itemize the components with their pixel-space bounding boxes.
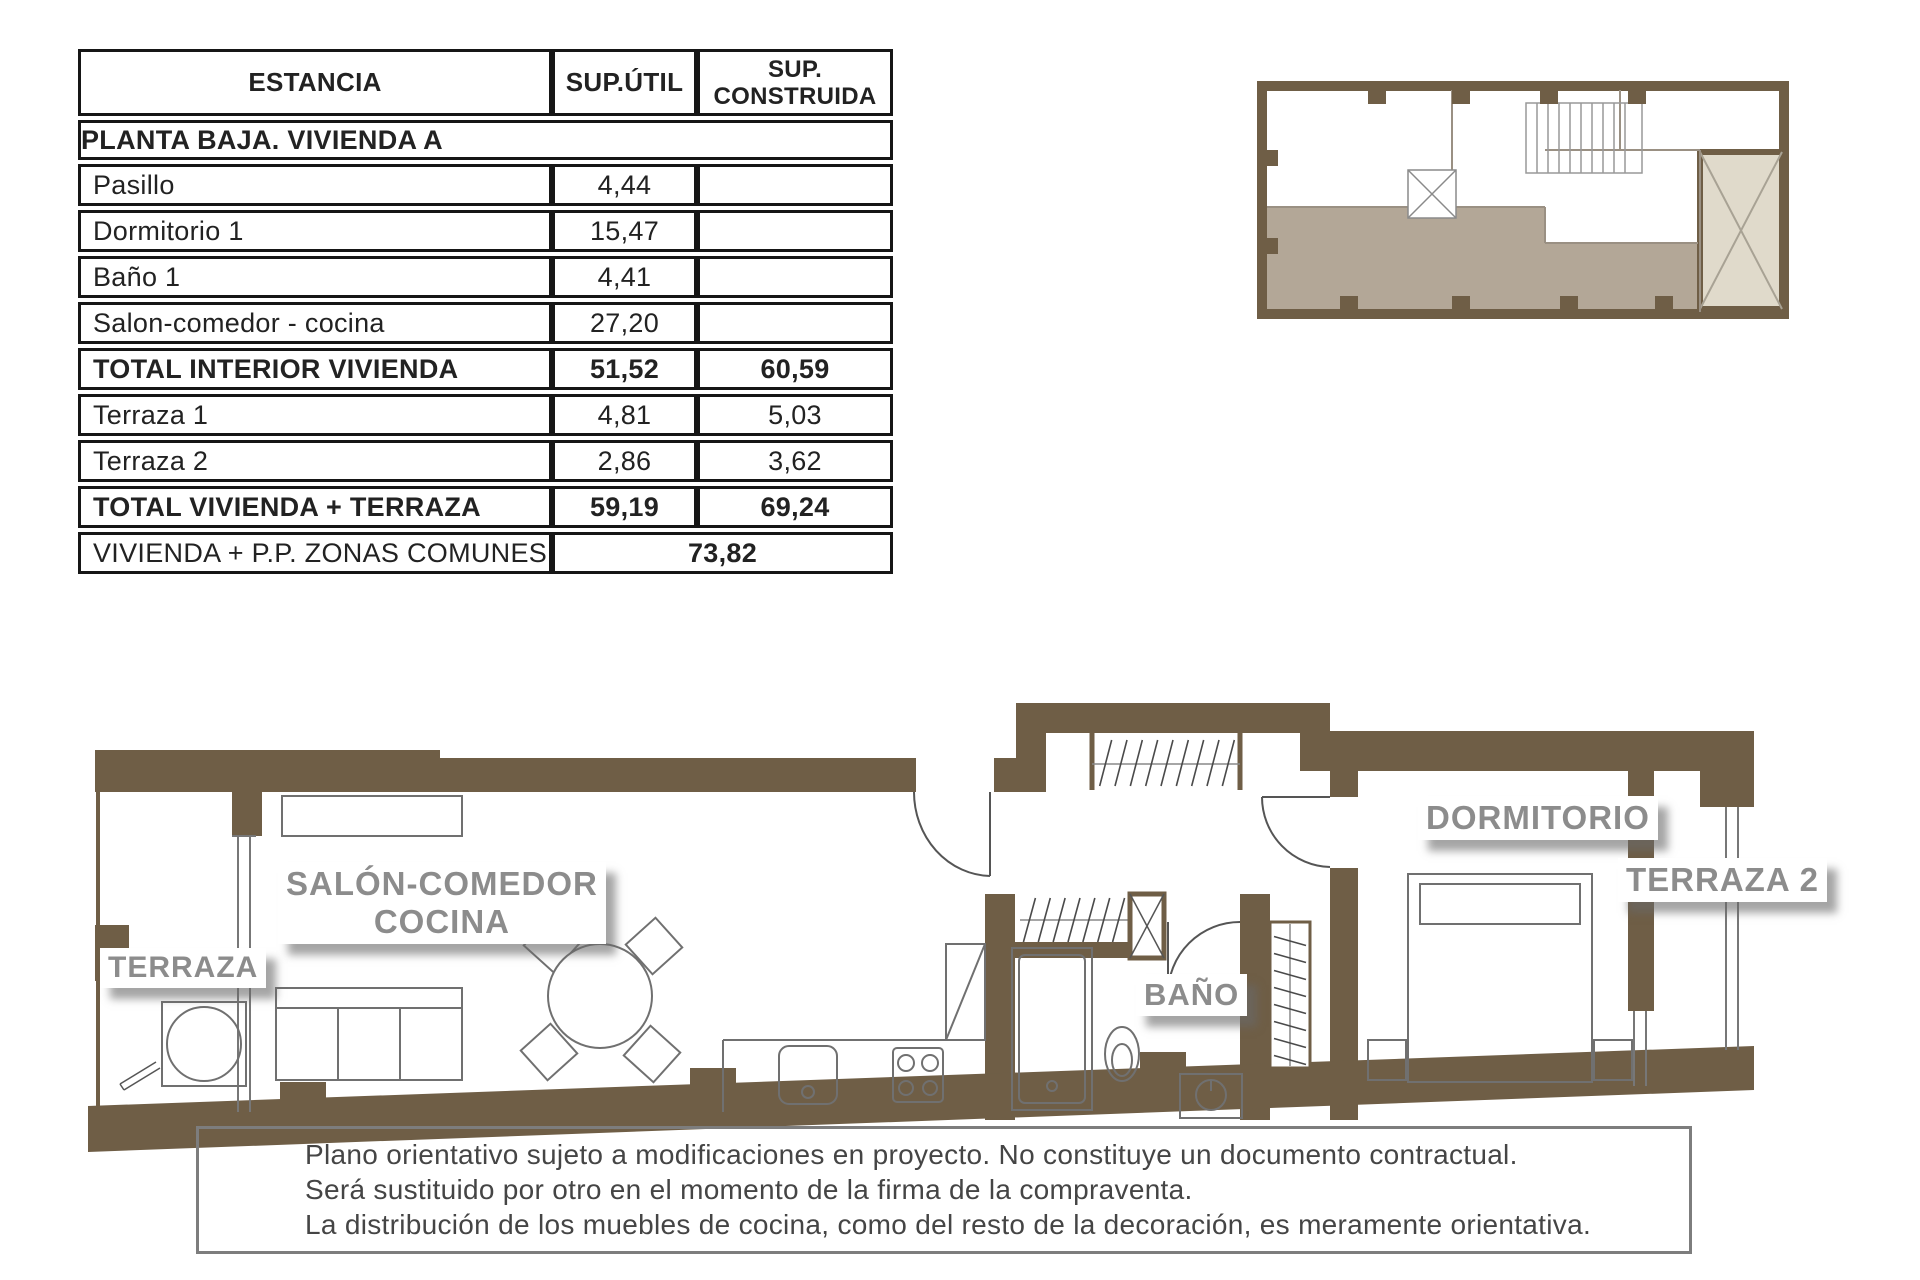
disclaimer-box: Plano orientativo sujeto a modificacione… [196,1126,1692,1254]
plan-sheet: ESTANCIA SUP.ÚTIL SUP. CONSTRUIDA PLANTA… [0,0,1920,1280]
terraza-label: TERRAZA [100,948,266,988]
wardrobe-dormitorio [1270,922,1310,1068]
salon-label-line2: COCINA [286,903,598,941]
key-plan [1262,86,1784,314]
dining-table [548,944,652,1048]
dormitorio-label: DORMITORIO [1418,796,1658,840]
sofa [276,988,462,1080]
key-plan-elevator [1408,170,1456,218]
disclaimer-line-1: Plano orientativo sujeto a modificacione… [305,1137,1669,1172]
bedroom-door-arc [1262,797,1330,867]
salon-label: SALÓN-COMEDOR COCINA [278,862,606,944]
entry-door-arc [914,792,990,876]
terraza-table [162,1002,246,1086]
salon-label-line1: SALÓN-COMEDOR [286,865,598,903]
furniture [120,796,1632,1118]
closet-top [1092,733,1240,790]
floor-plan-svg [0,0,1920,1280]
sideboard [282,796,462,836]
terraza-drain-mark [120,1062,160,1090]
bano-label: BAÑO [1136,974,1247,1016]
disclaimer-line-3: La distribución de los muebles de cocina… [305,1207,1669,1242]
disclaimer-line-2: Será sustituido por otro en el momento d… [305,1172,1669,1207]
closet-hall [1020,898,1128,942]
bed [1408,874,1592,1082]
terraza2-label: TERRAZA 2 [1618,858,1827,902]
